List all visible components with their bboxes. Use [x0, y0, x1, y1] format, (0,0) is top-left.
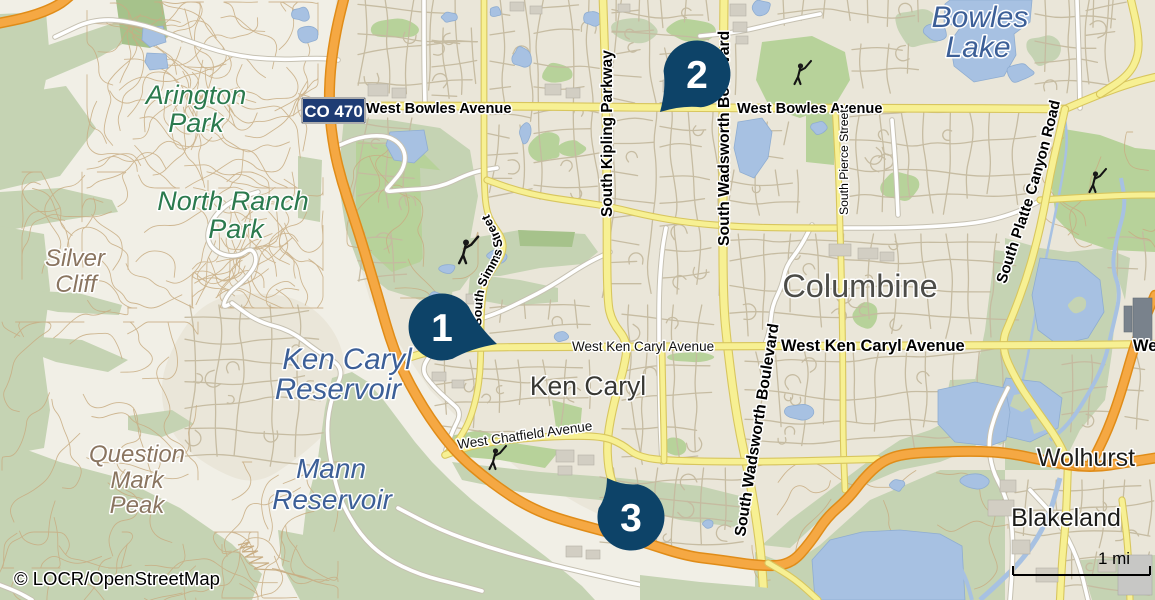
svg-text:Reservoir: Reservoir [275, 373, 402, 406]
svg-text:Arington: Arington [144, 80, 247, 110]
svg-text:Question: Question [89, 441, 185, 468]
svg-text:Mark: Mark [110, 467, 165, 494]
svg-text:West Ke: West Ke [1133, 337, 1155, 355]
svg-text:Columbine: Columbine [782, 268, 937, 304]
svg-text:1: 1 [431, 307, 453, 350]
svg-text:Bowles: Bowles [932, 1, 1029, 34]
svg-text:CO 470: CO 470 [304, 102, 363, 121]
svg-text:1 mi: 1 mi [1098, 549, 1130, 568]
svg-text:Mann: Mann [296, 453, 366, 484]
svg-text:South Kipling Parkway: South Kipling Parkway [599, 50, 616, 217]
svg-text:North Ranch: North Ranch [157, 186, 309, 216]
svg-text:Silver: Silver [45, 245, 106, 272]
svg-text:West Ken Caryl Avenue: West Ken Caryl Avenue [781, 337, 965, 355]
svg-text:Lake: Lake [945, 31, 1010, 64]
svg-text:Reservoir: Reservoir [272, 484, 393, 515]
svg-text:West Bowles Avenue: West Bowles Avenue [366, 101, 511, 117]
svg-text:West Ken Caryl Avenue: West Ken Caryl Avenue [572, 339, 714, 354]
svg-text:3: 3 [620, 497, 642, 540]
svg-text:South Pierce Street: South Pierce Street [837, 109, 851, 215]
svg-text:Wolhurst: Wolhurst [1037, 444, 1135, 472]
svg-text:Peak: Peak [110, 492, 167, 519]
svg-text:Ken Caryl: Ken Caryl [530, 371, 646, 401]
svg-text:Park: Park [168, 108, 225, 138]
svg-text:Cliff: Cliff [55, 271, 99, 298]
svg-text:Ken Caryl: Ken Caryl [282, 343, 413, 376]
svg-text:2: 2 [686, 54, 708, 97]
svg-text:© LOCR/OpenStreetMap: © LOCR/OpenStreetMap [14, 568, 220, 589]
svg-text:Park: Park [208, 214, 265, 244]
svg-text:West Bowles Avenue: West Bowles Avenue [737, 101, 882, 117]
svg-text:Blakeland: Blakeland [1011, 504, 1121, 532]
